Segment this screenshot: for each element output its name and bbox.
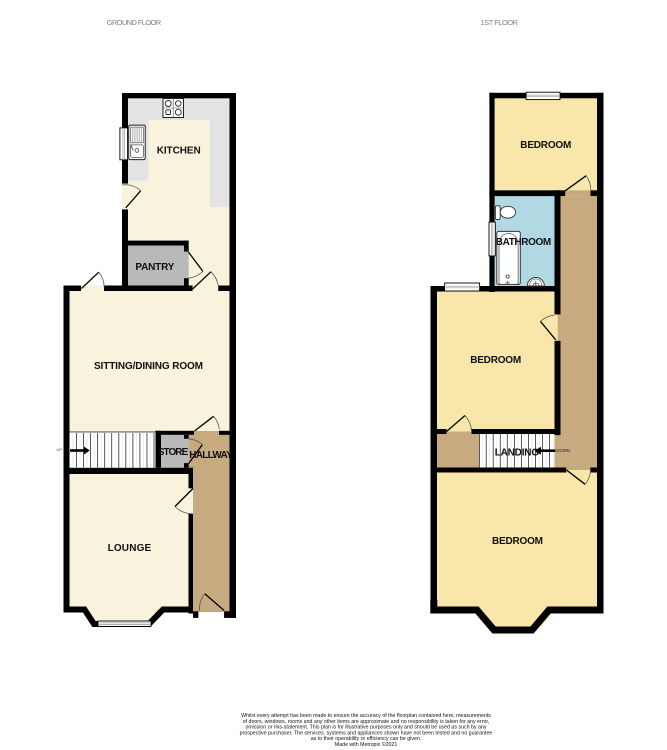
svg-text:BATHROOM: BATHROOM xyxy=(496,237,552,248)
svg-text:1ST FLOOR: 1ST FLOOR xyxy=(481,18,519,27)
svg-text:GROUND FLOOR: GROUND FLOOR xyxy=(107,18,162,27)
svg-text:HALLWAY: HALLWAY xyxy=(189,450,233,461)
svg-text:BEDROOM: BEDROOM xyxy=(520,140,571,151)
svg-text:Made with Metropix ©2021: Made with Metropix ©2021 xyxy=(335,741,398,748)
svg-text:LOUNGE: LOUNGE xyxy=(108,543,152,554)
svg-text:UP: UP xyxy=(56,447,62,452)
svg-text:BEDROOM: BEDROOM xyxy=(470,355,521,366)
svg-text:SITTING/DINING ROOM: SITTING/DINING ROOM xyxy=(94,361,203,372)
svg-text:LANDING: LANDING xyxy=(495,447,540,458)
svg-text:BEDROOM: BEDROOM xyxy=(492,536,543,547)
svg-text:PANTRY: PANTRY xyxy=(135,262,174,273)
svg-text:DOWN: DOWN xyxy=(557,448,571,453)
svg-text:KITCHEN: KITCHEN xyxy=(157,146,201,157)
svg-text:STORE: STORE xyxy=(158,447,189,458)
